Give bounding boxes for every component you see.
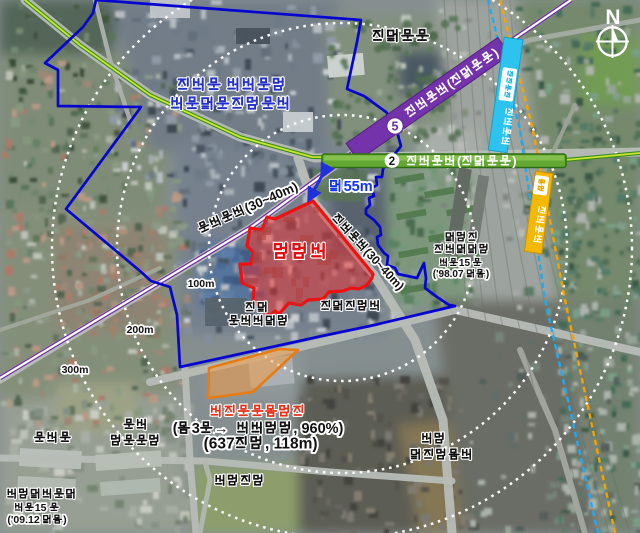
svg-text:300m: 300m: [62, 364, 89, 376]
svg-text:('09.12: ('09.12: [7, 514, 39, 526]
svg-text:('98.07: ('98.07: [433, 269, 464, 280]
svg-text:15: 15: [459, 258, 471, 269]
svg-text:): ): [486, 269, 489, 280]
svg-text:200m: 200m: [127, 324, 154, 336]
svg-text:55m: 55m: [344, 179, 373, 195]
svg-text:2: 2: [389, 156, 395, 168]
svg-text:, 118m): , 118m): [265, 436, 318, 453]
svg-text:100m: 100m: [188, 278, 215, 290]
svg-text:): ): [512, 154, 516, 169]
svg-text:): ): [63, 514, 67, 526]
svg-text:(: (: [457, 154, 462, 169]
svg-text:3: 3: [192, 421, 200, 437]
svg-text:(637: (637: [204, 436, 235, 453]
svg-text:5: 5: [392, 120, 399, 134]
svg-text:15: 15: [35, 502, 47, 514]
svg-text:(: (: [173, 421, 178, 437]
